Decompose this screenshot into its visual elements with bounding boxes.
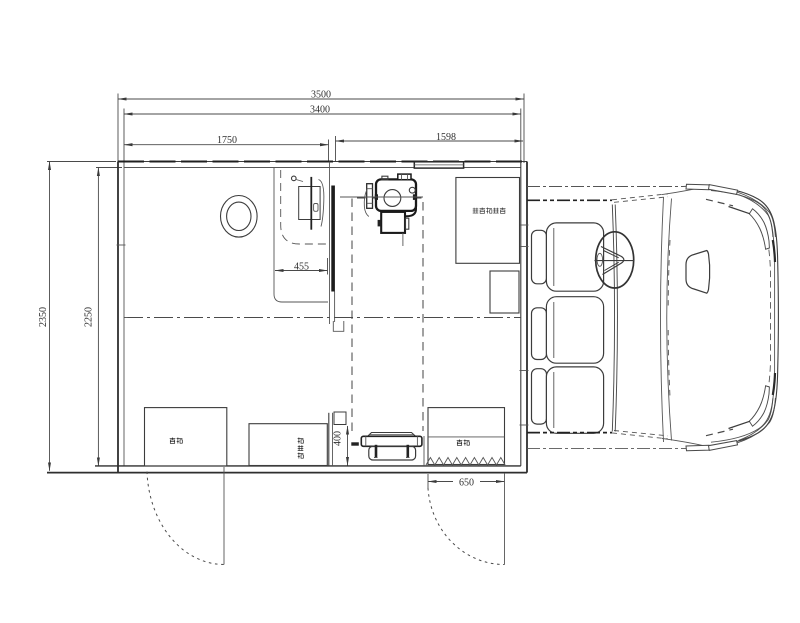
svg-text:1750: 1750 [217,135,237,146]
svg-text:650: 650 [459,478,474,489]
svg-text:2250: 2250 [84,307,95,327]
svg-text:455: 455 [294,261,309,272]
svg-text:3400: 3400 [310,105,330,116]
svg-text:2350: 2350 [38,307,49,327]
svg-text:400: 400 [333,431,344,446]
svg-text:1598: 1598 [436,132,456,143]
svg-text:3500: 3500 [311,90,331,101]
